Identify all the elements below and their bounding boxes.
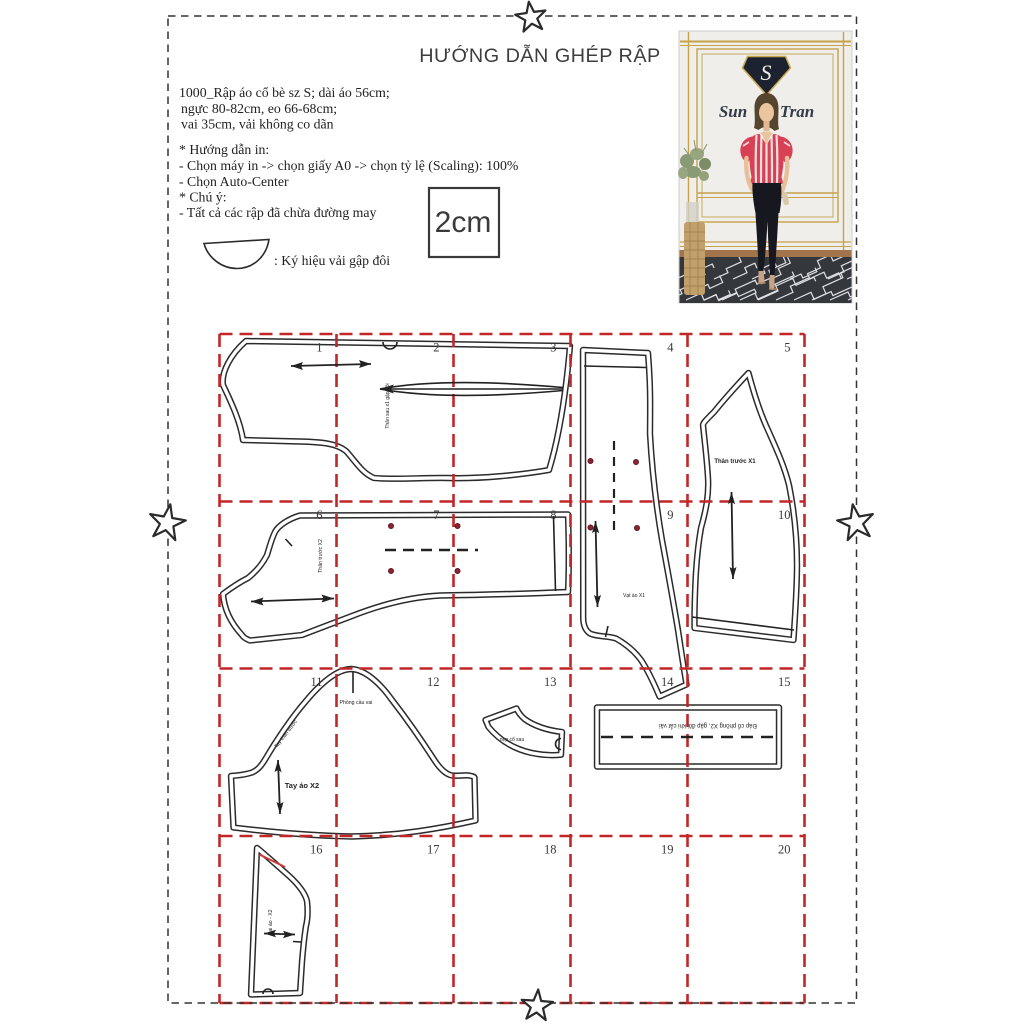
svg-text:2: 2 <box>433 341 439 355</box>
svg-text:ngực 80-82cm, eo 66-68cm;: ngực 80-82cm, eo 66-68cm; <box>181 101 337 116</box>
svg-text:12: 12 <box>427 675 440 689</box>
svg-text:19: 19 <box>661 843 674 857</box>
svg-text:Thân trước X2: Thân trước X2 <box>318 539 324 573</box>
svg-text:15: 15 <box>778 675 791 689</box>
svg-text:18: 18 <box>544 843 557 857</box>
svg-text:nẹp cổ sau: nẹp cổ sau <box>500 736 525 743</box>
svg-text:- Chọn máy in -> chọn giấy A0: - Chọn máy in -> chọn giấy A0 -> chọn tỷ… <box>179 158 519 174</box>
svg-text:9: 9 <box>667 508 673 522</box>
svg-text:* Hướng dẫn in:: * Hướng dẫn in: <box>179 142 269 157</box>
svg-text:11: 11 <box>310 675 322 689</box>
svg-text:13: 13 <box>544 675 557 689</box>
svg-text:Tran: Tran <box>780 102 814 121</box>
svg-text:Phồng cầu vai: Phồng cầu vai <box>340 700 373 706</box>
svg-text:Vạt áo X1: Vạt áo X1 <box>623 593 645 599</box>
svg-text:S: S <box>761 60 772 85</box>
svg-text:* Chú ý:: * Chú ý: <box>179 190 227 205</box>
svg-text:16: 16 <box>310 843 323 857</box>
svg-text:1: 1 <box>316 341 322 355</box>
svg-text:Sun: Sun <box>719 102 747 121</box>
svg-text:vai 35cm, vải không co dãn: vai 35cm, vải không co dãn <box>181 117 334 132</box>
svg-text:14: 14 <box>661 675 674 689</box>
svg-text:6: 6 <box>316 508 322 522</box>
svg-text:10: 10 <box>778 508 791 522</box>
svg-text:17: 17 <box>427 843 440 857</box>
svg-text:20: 20 <box>778 843 791 857</box>
svg-text:HƯỚNG DẪN GHÉP RẬP: HƯỚNG DẪN GHÉP RẬP <box>419 44 660 67</box>
svg-text:5: 5 <box>784 341 790 355</box>
svg-text:Tay áo X2: Tay áo X2 <box>285 781 319 790</box>
svg-text:1000_Rập áo cổ bè sz S; dài áo: 1000_Rập áo cổ bè sz S; dài áo 56cm; <box>179 85 390 100</box>
svg-text:: Ký hiệu vải gập đôi: : Ký hiệu vải gập đôi <box>274 253 390 268</box>
svg-text:Thân sau x1 gập đôi: Thân sau x1 gập đôi <box>385 383 391 428</box>
svg-text:- Chọn Auto-Center: - Chọn Auto-Center <box>179 174 289 189</box>
svg-text:7: 7 <box>433 508 439 522</box>
svg-text:Thân trước X1: Thân trước X1 <box>714 459 756 465</box>
svg-text:4: 4 <box>667 341 674 355</box>
svg-text:3: 3 <box>550 341 556 355</box>
svg-text:2cm: 2cm <box>435 206 492 239</box>
svg-text:- Tất cả các rập đã chừa đường: - Tất cả các rập đã chừa đường may <box>179 205 377 220</box>
svg-text:Đáp cổ phồng X2, gập đôi khi c: Đáp cổ phồng X2, gập đôi khi cắt vải <box>659 722 757 729</box>
